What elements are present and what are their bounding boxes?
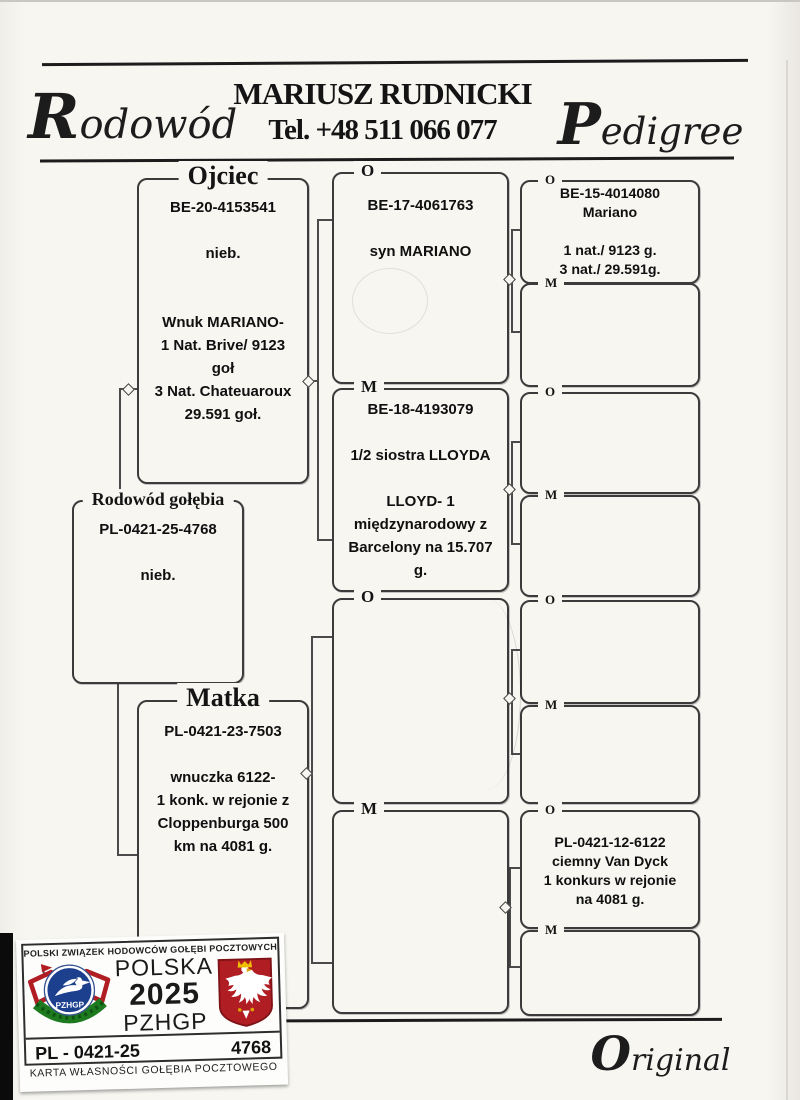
pedigree-box-gen3-3-label: O — [354, 587, 381, 607]
pedigree-box-gen4-7: OPL-0421-12-6122ciemny Van Dyck1 konkurs… — [520, 810, 700, 929]
pedigree-box-father-line-7: goł — [212, 357, 235, 380]
pedigree-box-gen3-1-content: BE-17-4061763syn MARIANO — [334, 174, 507, 263]
connector-line — [311, 636, 333, 638]
pzhgp-logo-icon: PZHGP — [26, 959, 114, 1035]
poland-eagle-icon — [216, 956, 276, 1030]
card-year: 2025 — [115, 979, 214, 1012]
pedigree-box-gen4-4: M — [520, 495, 700, 597]
pedigree-box-gen4-5: O — [520, 600, 700, 704]
pedigree-box-father-label: Ojciec — [179, 161, 268, 191]
card-ring-number: 4768 — [231, 1036, 272, 1058]
header-owner-block: MARIUSZ RUDNICKI Tel. +48 511 066 077 — [215, 76, 550, 147]
pedigree-box-gen4-1-line-3: 1 nat./ 9123 g. — [563, 242, 656, 261]
pedigree-box-gen3-4-label: M — [354, 799, 384, 819]
pedigree-box-gen3-2-label: M — [354, 377, 384, 397]
scan-smudge-circle — [352, 268, 428, 334]
pedigree-box-gen3-4: M — [332, 810, 509, 1014]
pedigree-box-father-line-2: nieb. — [205, 242, 240, 265]
pedigree-box-gen4-7-line-1: ciemny Van Dyck — [552, 853, 668, 872]
ownership-card-frame: POLSKI ZWIĄZEK HODOWCÓW GOŁĘBI POCZTOWYC… — [21, 937, 282, 1066]
title-rodowod: Rodowód — [28, 80, 213, 153]
pedigree-box-subject-line-0: PL-0421-25-4768 — [99, 518, 217, 541]
connector-line — [117, 854, 137, 856]
pedigree-box-father-content: BE-20-4153541nieb.Wnuk MARIANO-1 Nat. Br… — [139, 180, 307, 426]
pedigree-box-mother-line-0: PL-0421-23-7503 — [164, 720, 282, 743]
pedigree-box-gen4-1-content: BE-15-4014080Mariano1 nat./ 9123 g.3 nat… — [522, 182, 698, 280]
pedigree-box-gen4-7-line-2: 1 konkurs w rejonie — [544, 872, 676, 891]
scanned-pedigree-page: Rodowód MARIUSZ RUDNICKI Tel. +48 511 06… — [0, 0, 800, 1100]
pedigree-box-gen3-2-line-0: BE-18-4193079 — [368, 398, 474, 421]
scan-right-edge — [786, 60, 788, 1100]
pedigree-box-gen4-4-label: M — [538, 487, 564, 503]
pedigree-box-gen3-1-line-2: syn MARIANO — [370, 240, 472, 263]
pedigree-box-mother-line-3: 1 konk. w rejonie z — [157, 789, 290, 812]
logo-text: PZHGP — [55, 999, 84, 1010]
pedigree-box-gen4-1-line-4: 3 nat./ 29.591g. — [560, 261, 661, 280]
pedigree-box-mother-content: PL-0421-23-7503wnuczka 6122-1 konk. w re… — [139, 702, 307, 858]
owner-name: MARIUSZ RUDNICKI — [215, 76, 550, 112]
pedigree-box-gen4-3-label: O — [538, 384, 562, 400]
card-org: PZHGP — [116, 1009, 215, 1035]
header-bottom-rule — [40, 156, 734, 162]
pedigree-box-subject-label: Rodowód gołębia — [83, 489, 234, 510]
pedigree-box-gen3-2-line-4: LLOYD- 1 — [386, 490, 454, 513]
pedigree-box-gen3-2-line-2: 1/2 siostra LLOYDA — [350, 444, 490, 467]
pedigree-box-mother-line-4: Cloppenburga 500 — [158, 812, 289, 835]
pedigree-box-gen3-2-line-6: Barcelony na 15.707 — [348, 536, 492, 559]
header-top-rule — [42, 59, 748, 66]
ownership-card: POLSKI ZWIĄZEK HODOWCÓW GOŁĘBI POCZTOWYC… — [16, 933, 288, 1092]
connector-line — [311, 962, 333, 964]
pedigree-box-gen4-6: M — [520, 705, 700, 804]
pedigree-box-gen4-7-content: PL-0421-12-6122ciemny Van Dyck1 konkurs … — [522, 812, 698, 910]
pedigree-box-gen3-2-content: BE-18-41930791/2 siostra LLOYDALLOYD- 1m… — [334, 390, 507, 582]
title-pedigree: Pedigree — [553, 90, 748, 158]
pedigree-box-mother-line-5: km na 4081 g. — [174, 835, 272, 858]
pedigree-box-gen4-1: OBE-15-4014080Mariano1 nat./ 9123 g.3 na… — [520, 180, 700, 284]
pedigree-box-gen4-7-line-3: na 4081 g. — [576, 891, 645, 910]
pedigree-box-gen4-8: M — [520, 930, 700, 1016]
pedigree-box-gen4-2-label: M — [538, 275, 564, 291]
pedigree-box-mother-line-2: wnuczka 6122- — [170, 766, 275, 789]
connector-line — [509, 867, 511, 968]
pedigree-box-father-line-8: 3 Nat. Chateuaroux — [155, 380, 292, 403]
connector-line — [317, 539, 333, 541]
pedigree-box-subject-content: PL-0421-25-4768nieb. — [74, 502, 242, 587]
pedigree-box-father: OjciecBE-20-4153541nieb.Wnuk MARIANO-1 N… — [137, 178, 309, 484]
pedigree-box-gen4-8-label: M — [538, 922, 564, 938]
pedigree-box-gen4-3: O — [520, 392, 700, 494]
card-ring-prefix: PL - 0421-25 — [35, 1040, 140, 1064]
pedigree-box-father-line-5: Wnuk MARIANO- — [162, 311, 284, 334]
pedigree-box-subject-line-2: nieb. — [140, 564, 175, 587]
card-emblem-row: PZHGP POLSKA 2025 PZHGP — [24, 952, 280, 1038]
pedigree-box-gen4-6-label: M — [538, 697, 564, 713]
pedigree-box-gen3-1-line-0: BE-17-4061763 — [368, 194, 474, 217]
pedigree-box-father-line-0: BE-20-4153541 — [170, 196, 276, 219]
pedigree-box-gen4-5-label: O — [538, 592, 562, 608]
pedigree-box-gen3-2-line-7: g. — [414, 559, 427, 582]
scan-top-edge — [0, 0, 800, 2]
pedigree-box-gen4-2: M — [520, 283, 700, 387]
pedigree-box-father-line-6: 1 Nat. Brive/ 9123 — [161, 334, 285, 357]
pedigree-box-gen3-2-line-5: międzynarodowy z — [354, 513, 487, 536]
pedigree-box-gen3-2: MBE-18-41930791/2 siostra LLOYDALLOYD- 1… — [332, 388, 509, 592]
card-center-text: POLSKA 2025 PZHGP — [114, 955, 214, 1036]
pedigree-box-subject: Rodowód gołębiaPL-0421-25-4768nieb. — [72, 500, 244, 684]
scan-pen-arc — [452, 598, 521, 790]
scanner-edge-strip — [0, 933, 13, 1100]
pedigree-box-gen4-1-line-1: Mariano — [583, 204, 637, 223]
connector-node — [122, 383, 135, 396]
connector-line — [117, 680, 119, 856]
pedigree-box-gen4-7-label: O — [538, 802, 562, 818]
connector-line — [317, 219, 333, 221]
original-mark: Original — [583, 1026, 738, 1081]
pedigree-box-mother-label: Matka — [177, 683, 269, 713]
pedigree-box-gen3-1-label: O — [354, 161, 381, 181]
pedigree-box-gen4-7-line-0: PL-0421-12-6122 — [554, 834, 665, 853]
owner-phone: Tel. +48 511 066 077 — [215, 114, 550, 147]
pedigree-box-gen3-1: OBE-17-4061763syn MARIANO — [332, 172, 509, 384]
connector-line — [311, 636, 313, 964]
pedigree-box-gen4-1-line-0: BE-15-4014080 — [560, 185, 660, 204]
pedigree-box-gen4-1-label: O — [538, 172, 562, 188]
pedigree-box-father-line-9: 29.591 goł. — [185, 403, 262, 426]
connector-line — [119, 388, 121, 502]
